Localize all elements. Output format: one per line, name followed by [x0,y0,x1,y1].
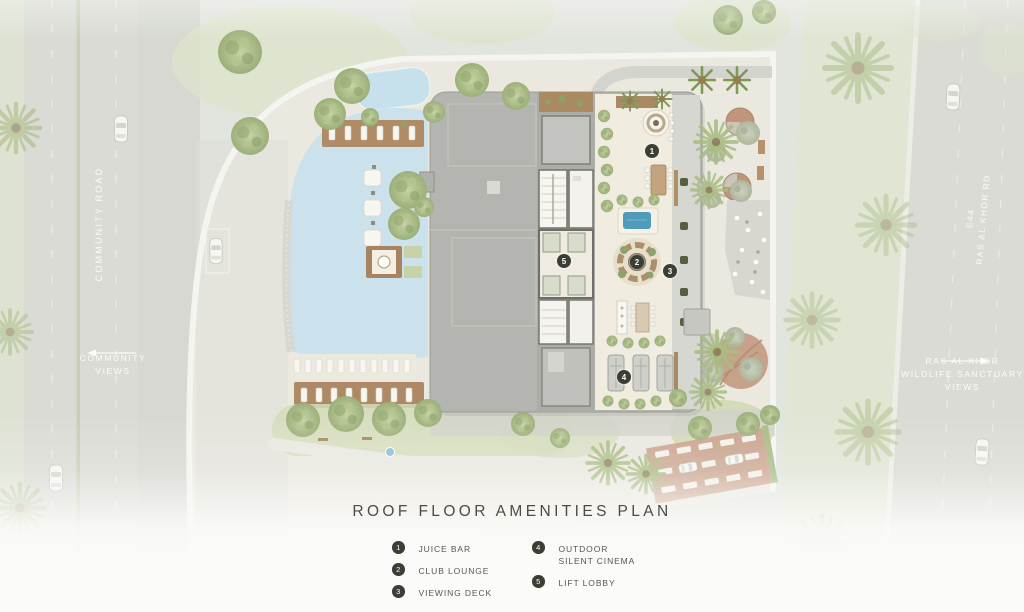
car-icon [115,116,128,142]
legend-label: LIFT LOBBY [559,575,616,589]
legend-column-1: 1 JUICE BAR 2 CLUB LOUNGE 3 VIEWING DECK [392,541,492,599]
legend-item-cinema: 4 OUTDOOR SILENT CINEMA [532,541,643,567]
legend-badge: 1 [392,541,405,554]
legend-item-viewing-deck: 3 VIEWING DECK [392,585,492,599]
building-core [537,92,595,412]
legend-label: JUICE BAR [419,541,472,555]
plan-marker-juice-bar: 1 [645,144,659,158]
car-icon [946,84,960,111]
legend-badge: 4 [532,541,545,554]
viewing-deck [684,309,710,335]
legend-label: CLUB LOUNGE [419,563,490,577]
legend-column-2: 4 OUTDOOR SILENT CINEMA 5 LIFT LOBBY [532,541,643,589]
legend-badge: 2 [392,563,405,576]
sanctuary-views-label: RAS AL KHOR WILDLIFE SANCTUARY VIEWS [895,355,1024,394]
community-views-label: COMMUNITY VIEWS [70,352,156,378]
plan-marker-lift-lobby: 5 [557,254,571,268]
legend-label: OUTDOOR SILENT CINEMA [559,541,643,567]
plan-marker-cinema: 4 [617,370,631,384]
bench [757,166,764,180]
community-road-label: COMMUNITY ROAD [94,167,104,282]
legend-item-juice-bar: 1 JUICE BAR [392,541,492,555]
roof-floor-amenities-plan-page: COMMUNITY ROAD COMMUNITY VIEWS E44 RAS A… [0,0,1024,612]
plunge-pool [618,208,658,234]
page-title: ROOF FLOOR AMENITIES PLAN [0,503,1024,521]
outdoor-kitchen-dining [617,301,655,334]
top-fade [0,0,1024,40]
legend-badge: 5 [532,575,545,588]
plan-marker-club-lounge: 2 [630,255,644,269]
floating-platforms [364,165,381,255]
legend-badge: 3 [392,585,405,598]
bench [758,140,765,154]
plan-marker-viewing-deck: 3 [663,264,677,278]
car-icon [210,239,222,264]
legend-item-club-lounge: 2 CLUB LOUNGE [392,563,492,577]
legend-label: VIEWING DECK [419,585,493,599]
stairwell [539,170,567,228]
legend-item-lift-lobby: 5 LIFT LOBBY [532,575,643,589]
